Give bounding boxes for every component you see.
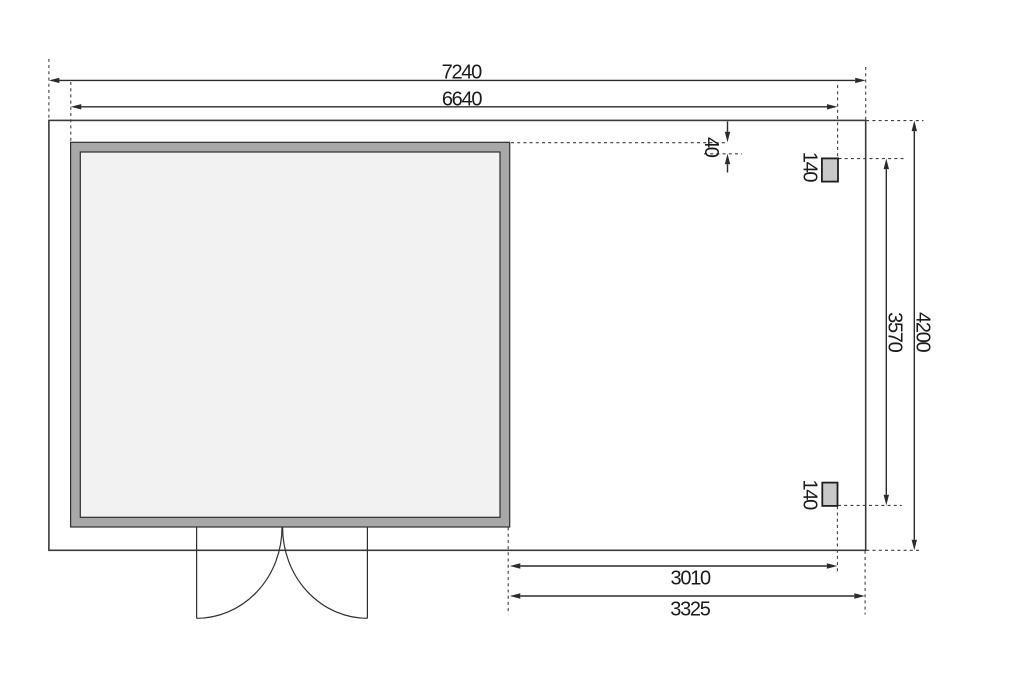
svg-text:3010: 3010 bbox=[671, 568, 711, 590]
svg-text:40: 40 bbox=[700, 137, 722, 158]
svg-text:140: 140 bbox=[799, 479, 821, 510]
svg-text:6640: 6640 bbox=[442, 88, 482, 110]
svg-text:3325: 3325 bbox=[670, 599, 710, 621]
svg-text:4200: 4200 bbox=[911, 312, 933, 352]
svg-text:7240: 7240 bbox=[442, 62, 482, 84]
svg-text:140: 140 bbox=[799, 152, 821, 183]
svg-text:3570: 3570 bbox=[884, 312, 906, 352]
